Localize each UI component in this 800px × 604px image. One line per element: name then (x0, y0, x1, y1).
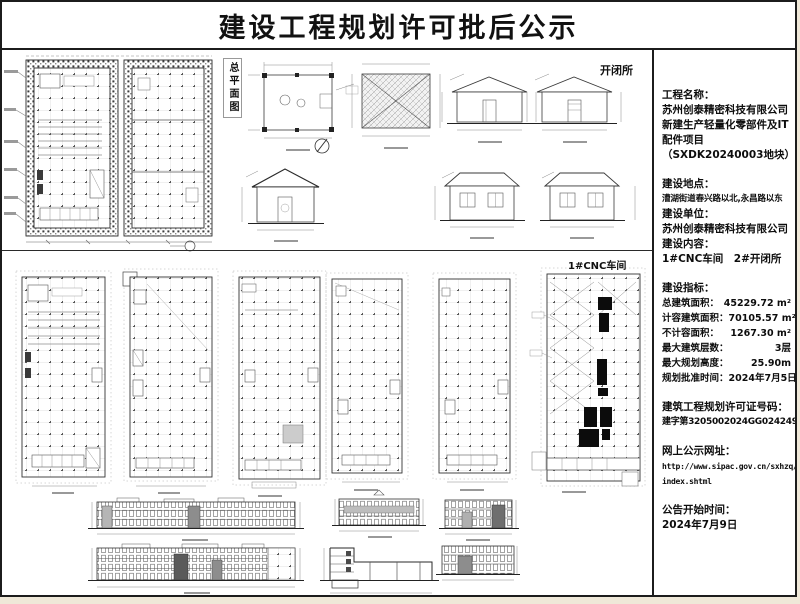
project-name-line: 苏州创泰精密科技有限公司 (662, 103, 791, 118)
website-section: 网上公示网址： http://www.sipac.gov.cn/sxhzq/ i… (662, 444, 791, 489)
mid-elevation (332, 490, 426, 537)
project-name-line: 新建生产轻量化零部件及IT (662, 118, 791, 133)
indicator-row: 不计容面积： 1267.30 m² (662, 326, 791, 341)
switch-station-elevation-1 (442, 74, 536, 142)
section-divider (2, 250, 652, 251)
cnc-plan-2 (123, 269, 218, 493)
cnc-plan-3 (233, 271, 326, 496)
cnc-workshop-label: 1#CNC车间 (568, 257, 626, 272)
announce-section: 公告开始时间： 2024年7月9日 (662, 503, 791, 533)
info-panel: 工程名称： 苏州创泰精密科技有限公司 新建生产轻量化零部件及IT 配件项目 （S… (654, 50, 795, 595)
indicator-row: 规划批准时间： 2024年7月5日 (662, 371, 791, 386)
unit-label: 建设单位： (662, 207, 791, 222)
indicator-row: 最大建筑层数： 3层 (662, 341, 791, 356)
indicator-label: 计容建筑面积： (662, 311, 729, 326)
permit-value: 建字第3205002024GG0242497号 (662, 415, 791, 430)
content-value: 1#CNC车间 2#开闭所 (662, 252, 791, 267)
project-name-line: （SXDK20240003地块） (662, 148, 791, 163)
indicator-label: 规划批准时间： (662, 371, 729, 386)
content-label: 建设内容： (662, 237, 791, 252)
indicators-label: 建设指标： (662, 281, 791, 296)
permit-section: 建筑工程规划许可证号码： 建字第3205002024GG0242497号 (662, 400, 791, 430)
switch-station-section (242, 169, 324, 241)
site-plan-callouts (4, 70, 26, 222)
site-plan-drawing (4, 56, 212, 251)
indicator-value: 45229.72 m² (724, 296, 791, 311)
indicator-label: 最大建筑层数： (662, 341, 729, 356)
indicator-value: 25.90m (751, 356, 791, 371)
indicator-label: 不计容面积： (662, 326, 719, 341)
cnc-floor-plans (16, 268, 645, 496)
switch-station-side-elevation-2 (540, 172, 635, 238)
indicator-row: 总建筑面积： 45229.72 m² (662, 296, 791, 311)
switch-station-side-elevation-1 (435, 172, 525, 238)
indicator-label: 总建筑面积： (662, 296, 719, 311)
announce-value: 2024年7月9日 (662, 518, 791, 533)
switch-station-roof-plan (346, 64, 440, 148)
location-value: 漕湖街道春兴路以北,永昌路以东 (662, 192, 791, 207)
switch-station-plan (248, 62, 354, 153)
cnc-plan-5 (433, 273, 516, 490)
indicator-row: 计容建筑面积： 70105.57 m² (662, 311, 791, 326)
cnc-roof-plan (530, 268, 645, 492)
project-name-label: 工程名称： (662, 88, 791, 103)
indicator-value: 1267.30 m² (730, 326, 791, 341)
location-label: 建设地点： (662, 177, 791, 192)
long-elevation-1 (88, 498, 304, 540)
right-elevation-bottom (436, 546, 520, 580)
indicator-value: 70105.57 m² (729, 311, 795, 326)
indicator-value: 3层 (775, 341, 791, 356)
page-title: 建设工程规划许可批后公示 (219, 6, 579, 45)
content: 总平面图 开闭所 1#CNC车间 工程名称： 苏州创泰精密科技有限公司 新建生产… (2, 50, 795, 595)
cad-drawings (2, 50, 652, 595)
site-plan-label: 总平面图 (223, 58, 242, 118)
switch-station-drawings (242, 62, 635, 241)
project-name-section: 工程名称： 苏州创泰精密科技有限公司 新建生产轻量化零部件及IT 配件项目 （S… (662, 88, 791, 163)
permit-label: 建筑工程规划许可证号码： (662, 400, 791, 415)
cnc-plan-4 (326, 273, 408, 490)
indicator-value: 2024年7月5日 (729, 371, 795, 386)
website-url-line: index.shtml (662, 474, 791, 489)
website-url-line: http://www.sipac.gov.cn/sxhzq/ (662, 459, 791, 474)
cnc-elevations (88, 490, 520, 593)
building-section (320, 548, 439, 593)
switch-station-label: 开闭所 (600, 62, 633, 78)
website-label: 网上公示网址： (662, 444, 791, 459)
location-section: 建设地点： 漕湖街道春兴路以北,永昌路以东 建设单位： 苏州创泰精密科技有限公司… (662, 177, 791, 267)
small-elevation (439, 500, 519, 540)
project-name-line: 配件项目 (662, 133, 791, 148)
long-elevation-2 (88, 544, 304, 593)
unit-value: 苏州创泰精密科技有限公司 (662, 222, 791, 237)
cnc-plan-1 (16, 271, 111, 493)
indicators-section: 建设指标： 总建筑面积： 45229.72 m² 计容建筑面积： 70105.5… (662, 281, 791, 386)
switch-station-elevation-2 (527, 74, 621, 142)
indicator-row: 最大规划高度： 25.90m (662, 356, 791, 371)
indicator-label: 最大规划高度： (662, 356, 729, 371)
title-bar: 建设工程规划许可批后公示 (2, 2, 795, 50)
drawings-area: 总平面图 开闭所 1#CNC车间 (2, 50, 654, 595)
notice-page: 建设工程规划许可批后公示 (0, 0, 797, 597)
announce-label: 公告开始时间： (662, 503, 791, 518)
